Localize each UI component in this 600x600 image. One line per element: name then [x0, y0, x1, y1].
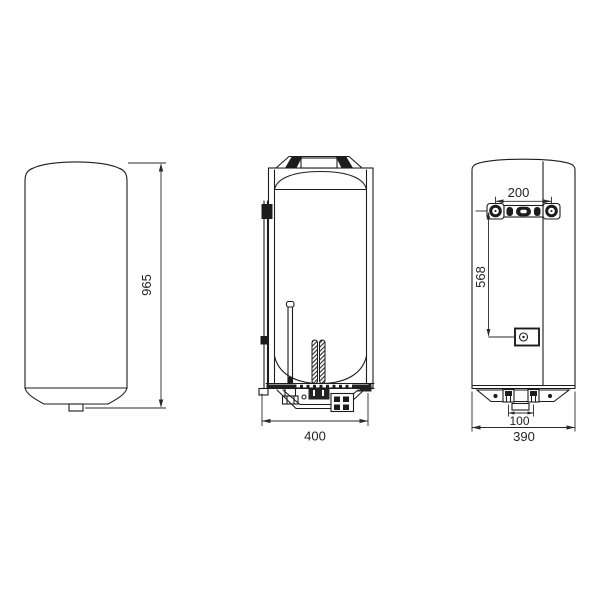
upper-mounting-point: [262, 204, 273, 219]
pipe-collar: [505, 391, 512, 396]
terminal-pin-3: [334, 405, 340, 411]
arrowhead-down: [159, 400, 163, 408]
mounting-slot-opening: [520, 210, 527, 213]
terminal-pin-1: [334, 397, 340, 403]
arrowhead-right: [360, 419, 369, 423]
three-view-technical-drawing: 965: [0, 0, 600, 600]
keyhole-right-center: [551, 210, 553, 212]
anchor-hole-center: [522, 336, 524, 338]
heater-base: [309, 389, 330, 400]
center-tab: [512, 404, 529, 411]
bottom-cap: [477, 390, 569, 411]
tank-body-outline: [25, 162, 127, 388]
heater-base-slit-2: [322, 390, 324, 396]
nut-shank: [285, 389, 296, 397]
drawing-canvas: 965: [0, 0, 600, 600]
side-view: [25, 162, 127, 411]
cap-screw-left: [493, 394, 497, 398]
tank-bottom-skirt: [25, 388, 127, 404]
heater-leg-right: [320, 340, 326, 384]
flange-band-left: [267, 385, 297, 389]
height-dimension-label: 965: [139, 274, 154, 296]
heater-base-slit-1: [313, 390, 315, 396]
heater-leg-left: [312, 340, 318, 384]
rear-view: 200 568: [472, 159, 575, 444]
drain-nozzle: [69, 404, 83, 411]
anchor-distance-label: 568: [473, 266, 488, 288]
water-pipe-left: [503, 390, 514, 403]
arrowhead-left: [262, 419, 271, 423]
lower-anchor-plate: [515, 329, 539, 346]
mounting-bar: [487, 204, 560, 220]
pipe-spacing-label: 100: [509, 414, 529, 428]
handle-grip: [301, 158, 337, 168]
water-pipe-right: [528, 390, 539, 403]
pipe-collar: [530, 391, 537, 396]
lower-mounting-point: [261, 336, 269, 345]
arrowhead-right: [567, 425, 576, 429]
cap-screw-right: [548, 394, 552, 398]
anode-cap: [287, 302, 295, 308]
carry-handle: [276, 157, 362, 169]
depth-dimension-label: 390: [513, 429, 535, 444]
arrowhead-up: [159, 163, 163, 171]
cap-outline: [477, 390, 569, 402]
bar-stud-right: [534, 207, 541, 216]
hole-spacing-label: 200: [508, 185, 530, 200]
keyhole-left-center: [495, 210, 497, 212]
arrowhead-left: [472, 425, 481, 429]
bar-stud-left: [507, 207, 514, 216]
strap-foot: [259, 389, 268, 396]
terminal-pin-2: [343, 397, 349, 403]
width-dimension-label: 400: [304, 429, 326, 444]
front-section-view: 400: [259, 157, 374, 444]
bracket-hole: [302, 395, 306, 399]
terminal-pin-4: [343, 405, 349, 411]
terminal-block: [331, 394, 354, 412]
